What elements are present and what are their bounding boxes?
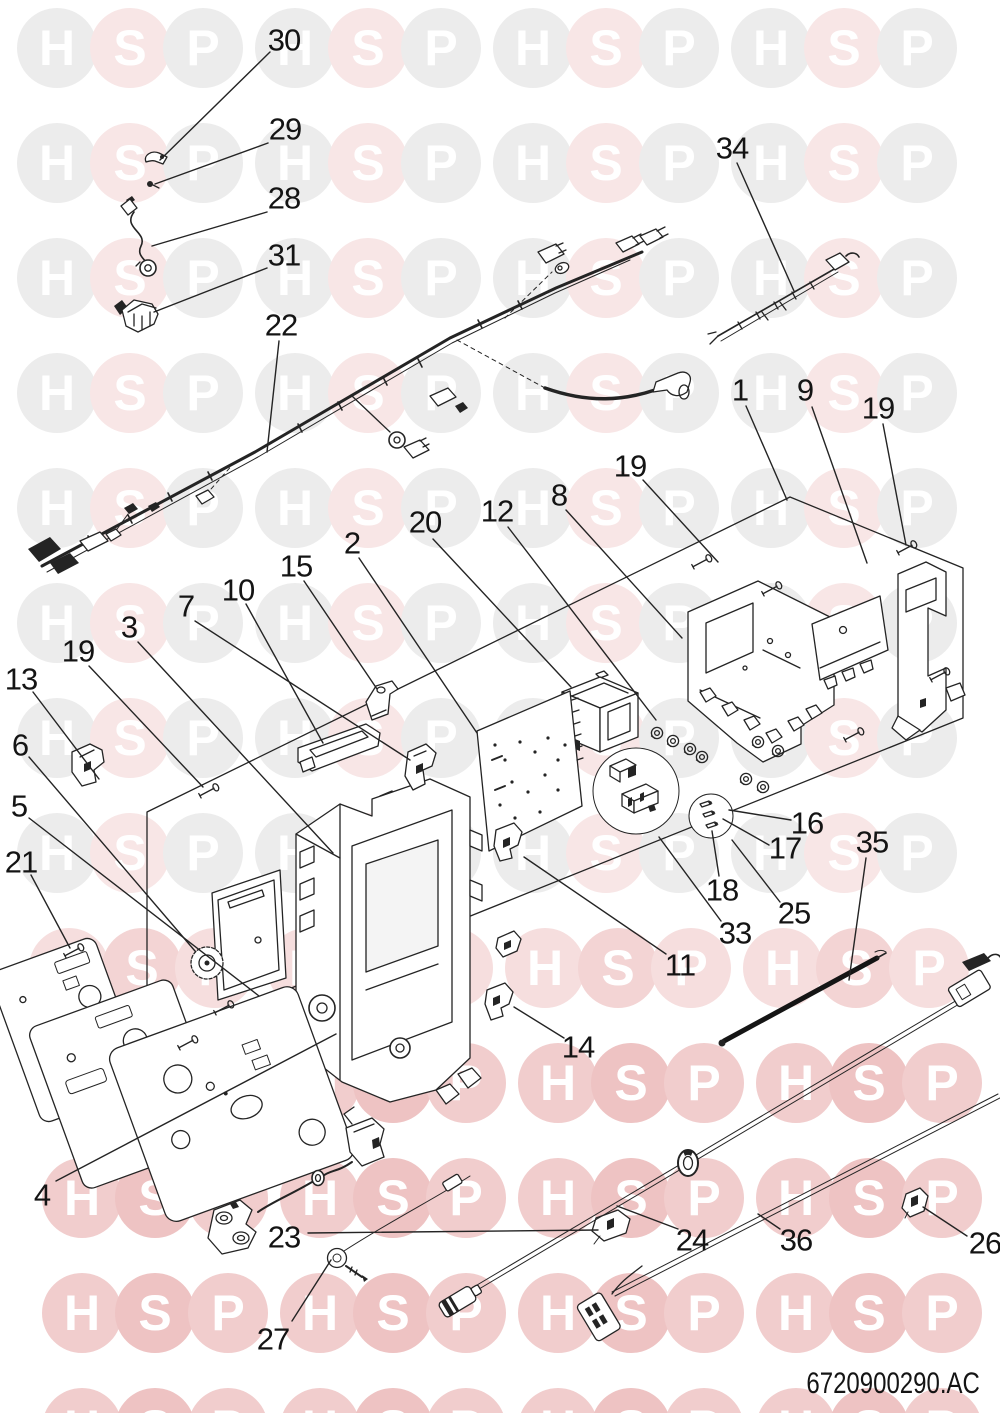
callout-31: 31 bbox=[268, 240, 300, 271]
callout-15: 15 bbox=[280, 551, 312, 582]
callout-1: 1 bbox=[732, 375, 748, 406]
callout-22: 22 bbox=[265, 310, 297, 341]
callout-19: 19 bbox=[862, 393, 894, 424]
callout-21: 21 bbox=[5, 847, 37, 878]
callout-2: 2 bbox=[344, 528, 360, 559]
callout-20: 20 bbox=[409, 507, 441, 538]
callout-layer: 3029283122341919198122021510731913652116… bbox=[0, 0, 1000, 1413]
callout-3: 3 bbox=[121, 612, 137, 643]
callout-7: 7 bbox=[178, 591, 194, 622]
callout-30: 30 bbox=[268, 25, 300, 56]
callout-34: 34 bbox=[716, 133, 748, 164]
callout-18: 18 bbox=[706, 875, 738, 906]
diagram-stage: HSPHSPHSPHSPHSPHSPHSPHSPHSPHSPHSPHSPHSPH… bbox=[0, 0, 1000, 1413]
document-code: 6720900290.AC bbox=[807, 1369, 980, 1399]
callout-5: 5 bbox=[11, 791, 27, 822]
callout-12: 12 bbox=[481, 496, 513, 527]
callout-19: 19 bbox=[62, 636, 94, 667]
callout-28: 28 bbox=[268, 183, 300, 214]
callout-27: 27 bbox=[257, 1324, 289, 1355]
callout-8: 8 bbox=[551, 480, 567, 511]
callout-13: 13 bbox=[5, 664, 37, 695]
callout-25: 25 bbox=[778, 898, 810, 929]
callout-9: 9 bbox=[797, 375, 813, 406]
callout-11: 11 bbox=[665, 950, 695, 981]
callout-19: 19 bbox=[614, 451, 646, 482]
callout-10: 10 bbox=[222, 575, 254, 606]
callout-36: 36 bbox=[780, 1225, 812, 1256]
callout-6: 6 bbox=[12, 730, 28, 761]
callout-24: 24 bbox=[676, 1225, 708, 1256]
callout-35: 35 bbox=[856, 827, 888, 858]
callout-26: 26 bbox=[969, 1228, 1000, 1259]
callout-4: 4 bbox=[34, 1180, 50, 1211]
callout-29: 29 bbox=[269, 114, 301, 145]
callout-14: 14 bbox=[562, 1032, 594, 1063]
callout-33: 33 bbox=[719, 918, 751, 949]
callout-17: 17 bbox=[769, 833, 801, 864]
callout-23: 23 bbox=[268, 1222, 300, 1253]
